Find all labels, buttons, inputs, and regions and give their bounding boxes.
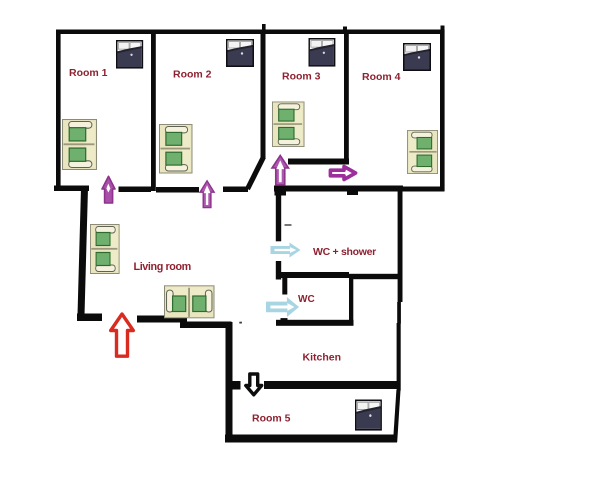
svg-text:Room 4: Room 4: [362, 71, 401, 83]
svg-text:Room 3: Room 3: [282, 70, 321, 82]
svg-text:Living room: Living room: [134, 261, 191, 273]
svg-text:Room 5: Room 5: [252, 413, 291, 425]
svg-text:Room 2: Room 2: [173, 68, 212, 80]
svg-text:WC: WC: [298, 294, 315, 305]
svg-text:WC + shower: WC + shower: [313, 246, 376, 258]
svg-text:Kitchen: Kitchen: [303, 352, 342, 364]
svg-text:Room 1: Room 1: [69, 67, 108, 79]
